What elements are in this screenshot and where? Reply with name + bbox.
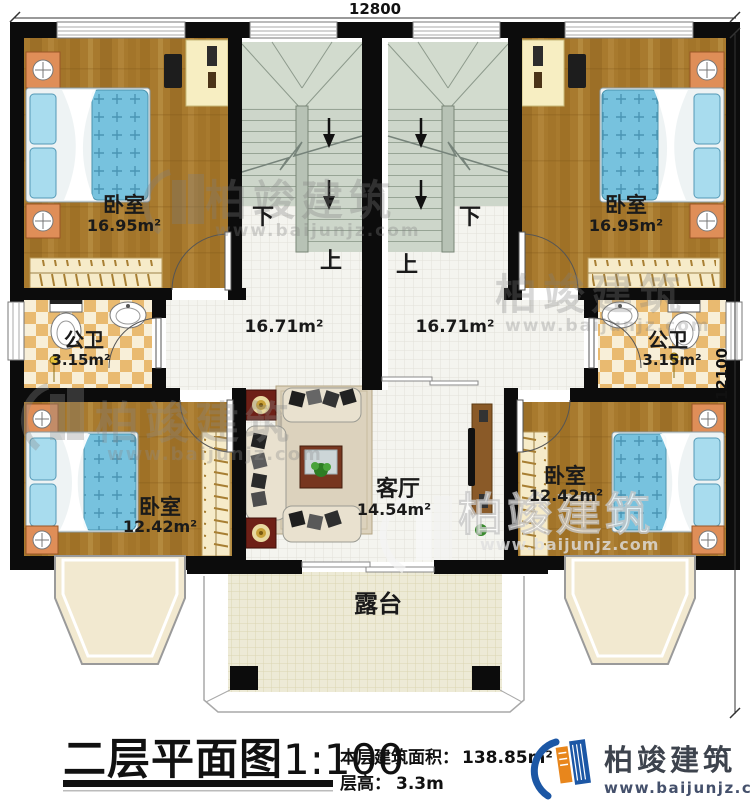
window-icon [250, 22, 337, 38]
watermark-url: www.baijunjz.com [480, 535, 659, 554]
bay-window-right [565, 556, 695, 664]
dimension-label: 12800 [349, 0, 401, 18]
watermark: 柏竣建筑 www.baijunjz.com [495, 270, 711, 336]
stair-down-label: 下 [459, 205, 481, 230]
room-area: 16.95m² [589, 216, 663, 235]
plan-title: 二层平面图 [63, 735, 283, 785]
room-label: 露台 [354, 590, 402, 618]
room-label: 公卫 [64, 328, 104, 352]
stair-landing [242, 42, 362, 108]
window-icon [413, 22, 500, 38]
room-label: 卧室 [605, 193, 647, 217]
title-underline [63, 780, 333, 787]
stair-up-label: 上 [396, 253, 418, 278]
sliding-door-icon [302, 562, 434, 572]
nightstand-icon [692, 404, 724, 434]
side-table-icon [246, 518, 276, 548]
bed-icon [600, 88, 724, 202]
window-icon [8, 302, 24, 360]
room-label: 卧室 [103, 193, 145, 217]
room-area: 3.15m² [51, 351, 110, 369]
sink-icon [110, 302, 146, 328]
bay-window-left [55, 556, 185, 664]
room-area: 16.71m² [416, 317, 495, 337]
tv-icon [568, 54, 586, 88]
nightstand-icon [692, 526, 724, 554]
room-area: 14.54m² [357, 500, 431, 519]
room-area: 3.15m² [642, 351, 701, 369]
nightstand-icon [690, 204, 724, 238]
floor-height-value: 3.3m [396, 774, 444, 794]
room-label: 卧室 [544, 464, 586, 488]
bed-icon [26, 88, 150, 202]
nightstand-icon [26, 526, 58, 554]
room-area: 12.42m² [123, 517, 197, 536]
terrace-post [472, 666, 500, 690]
dimension-top: 12800 [10, 0, 740, 22]
stair-up-label: 上 [320, 249, 342, 274]
brand-url: www.baijunjz.com [604, 779, 750, 797]
decor-icon [534, 72, 542, 88]
tv-icon [164, 54, 182, 88]
speaker-icon [207, 46, 217, 66]
room-label: 客厅 [376, 476, 420, 502]
stair-down-label: 下 [252, 205, 274, 230]
room-label: 卧室 [139, 495, 181, 519]
watermark-url: www.baijunjz.com [215, 221, 421, 241]
stair-landing [388, 42, 508, 108]
room-label: 公卫 [648, 328, 688, 352]
watermark-text: 柏竣建筑 [95, 398, 295, 449]
floor-height-label: 层高： [340, 773, 391, 794]
floor-plan-drawing: 柏竣建筑 www.baijunjz.com 柏竣建筑 www.baijunjz.… [0, 0, 750, 806]
company-logo: 柏竣建筑 www.baijunjz.com [534, 739, 750, 797]
watermark-url: www.baijunjz.com [107, 444, 323, 465]
room-area: 16.95m² [87, 216, 161, 235]
room-area: 16.71m² [245, 317, 324, 337]
dimension-label: 12100 [713, 348, 731, 400]
brand-name: 柏竣建筑 [604, 743, 736, 777]
room-area: 12.42m² [529, 486, 603, 505]
window-icon [565, 22, 693, 38]
wardrobe-icon [30, 258, 162, 288]
watermark-text: 柏竣建筑 [205, 176, 397, 225]
watermark-text: 柏竣建筑 [495, 270, 687, 319]
nightstand-icon [690, 52, 724, 88]
window-icon [57, 22, 185, 38]
stair-stringer [442, 106, 454, 252]
tv-icon [468, 428, 475, 486]
terrace-post [230, 666, 258, 690]
nightstand-icon [26, 204, 60, 238]
floor-plan-page: 柏竣建筑 www.baijunjz.com 柏竣建筑 www.baijunjz.… [0, 0, 750, 806]
decor-icon [208, 72, 216, 88]
title-block: 二层平面图 1:100 本层建筑面积： 138.85m² 层高： 3.3m [63, 735, 553, 794]
floor-area-label: 本层建筑面积： [340, 747, 459, 768]
speaker-icon [533, 46, 543, 66]
nightstand-icon [26, 52, 60, 88]
